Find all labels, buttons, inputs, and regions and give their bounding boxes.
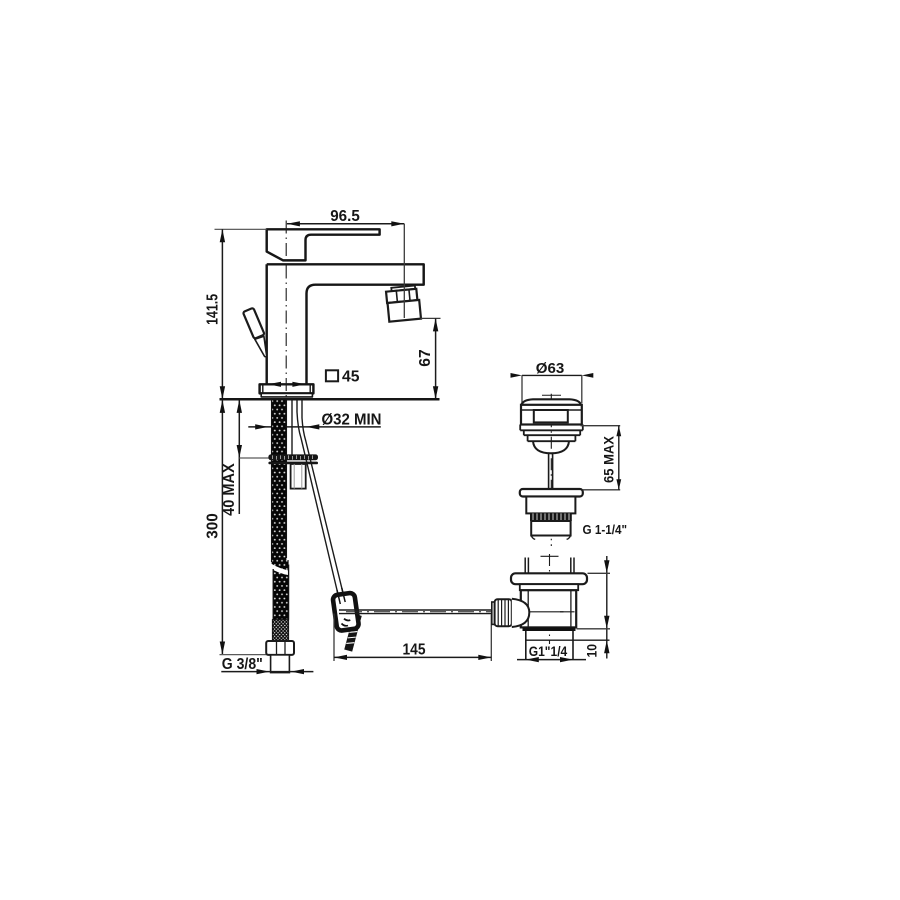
svg-text:141.5: 141.5 — [205, 294, 222, 325]
svg-text:67: 67 — [417, 349, 434, 367]
svg-text:40 MAX: 40 MAX — [221, 463, 238, 516]
svg-text:65 MAX: 65 MAX — [601, 436, 616, 483]
svg-text:Ø63: Ø63 — [536, 361, 565, 377]
svg-text:10: 10 — [583, 644, 599, 658]
svg-text:Ø32 MIN: Ø32 MIN — [322, 411, 382, 428]
svg-text:45: 45 — [342, 369, 360, 386]
svg-text:145: 145 — [403, 642, 426, 659]
svg-text:300: 300 — [205, 513, 222, 539]
svg-text:G1"1/4: G1"1/4 — [529, 643, 568, 659]
svg-text:96.5: 96.5 — [330, 208, 360, 225]
svg-text:G 1-1/4": G 1-1/4" — [583, 523, 628, 537]
